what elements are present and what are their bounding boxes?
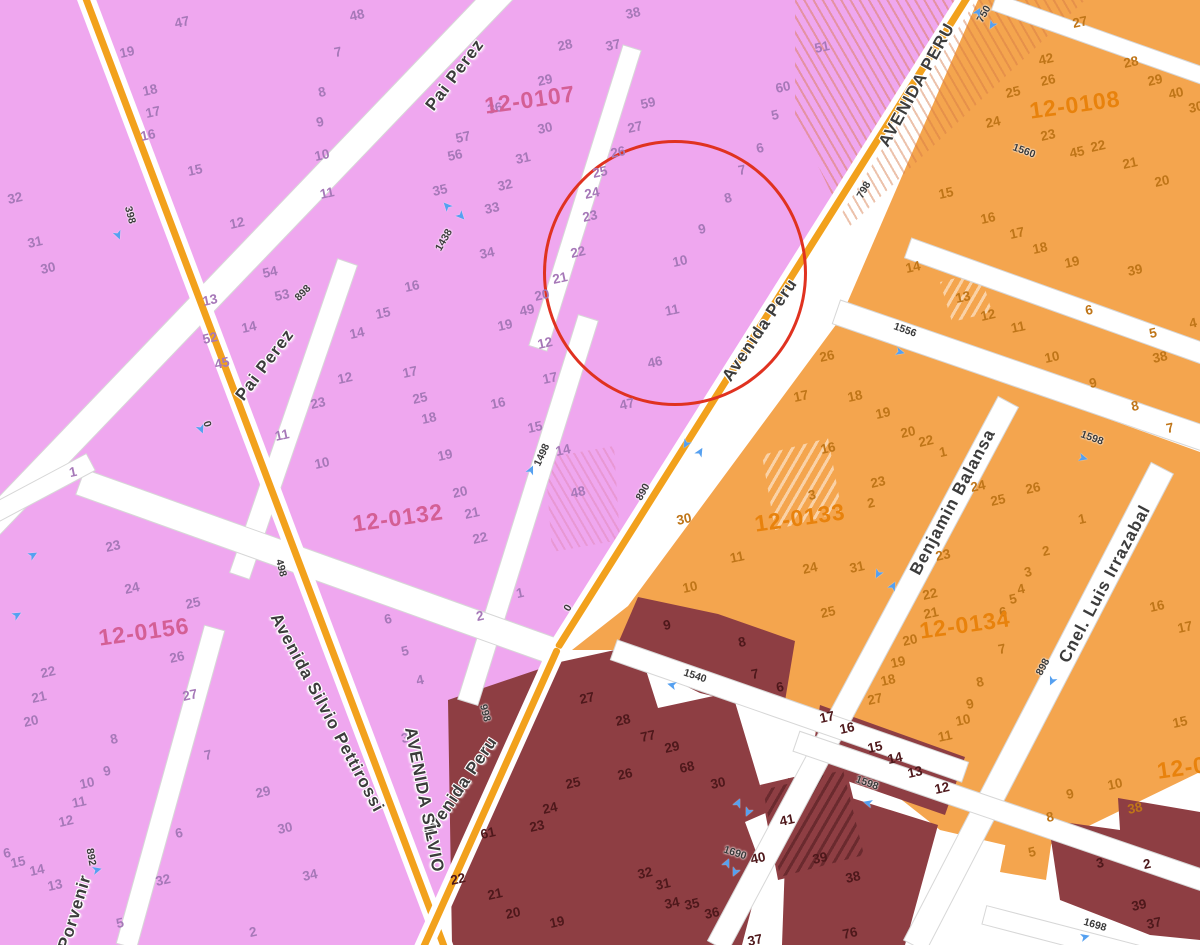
parcel-number: 17 [144, 103, 162, 121]
parcel-number: 11 [1009, 318, 1026, 336]
parcel-number: 16 [489, 394, 507, 412]
parcel-number: 10 [954, 711, 972, 729]
parcel-number: 23 [104, 537, 122, 555]
parcel-number: 32 [636, 864, 654, 882]
parcel-number: 15 [526, 418, 544, 436]
parcel-number: 20 [901, 631, 919, 649]
parcel-number: 30 [276, 819, 294, 837]
parcel-number: 16 [819, 439, 837, 457]
parcel-number: 18 [1031, 239, 1049, 257]
parcel-number: 52 [201, 329, 219, 347]
parcel-number: 27 [866, 690, 884, 708]
parcel-number: 77 [639, 727, 657, 745]
parcel-number: 26 [168, 648, 186, 666]
parcel-number: 49 [518, 301, 536, 319]
parcel-number: 13 [906, 763, 924, 781]
parcel-number: 23 [528, 817, 546, 835]
parcel-number: 14 [904, 258, 922, 276]
parcel-number: 39 [1130, 896, 1148, 914]
parcel-number: 19 [496, 316, 514, 334]
parcel-number: 22 [917, 432, 935, 450]
parcel-number: 19 [118, 43, 136, 61]
parcel-number: 25 [411, 389, 429, 407]
parcel-number: 11 [70, 793, 87, 811]
parcel-number: 37 [604, 36, 622, 54]
parcel-number: 51 [813, 38, 831, 56]
parcel-number: 28 [614, 711, 632, 729]
parcel-number: 19 [548, 913, 566, 931]
parcel-number: 17 [1008, 224, 1026, 242]
parcel-number: 18 [846, 387, 864, 405]
parcel-number: 12 [336, 369, 354, 387]
parcel-number: 16 [1148, 597, 1166, 615]
parcel-number: 47 [173, 13, 191, 31]
parcel-number: 30 [39, 259, 57, 277]
parcel-number: 18 [879, 671, 897, 689]
parcel-number: 20 [451, 483, 469, 501]
parcel-number: 17 [792, 387, 810, 405]
parcel-number: 12 [536, 334, 554, 352]
parcel-number: 25 [1004, 83, 1022, 101]
parcel-number: 11 [936, 727, 953, 745]
parcel-number: 41 [778, 811, 796, 829]
parcel-number: 14 [28, 861, 46, 879]
parcel-number: 11 [663, 301, 680, 319]
parcel-number: 21 [463, 504, 481, 522]
parcel-number: 29 [254, 783, 272, 801]
parcel-number: 35 [683, 895, 701, 913]
parcel-number: 23 [1039, 126, 1057, 144]
parcel-number: 10 [681, 578, 699, 596]
parcel-number: 45 [1068, 143, 1086, 161]
parcel-number: 26 [609, 143, 627, 161]
parcel-number: 40 [749, 849, 767, 867]
parcel-number: 61 [479, 824, 497, 842]
parcel-number: 20 [533, 286, 551, 304]
parcel-number: 14 [348, 324, 366, 342]
parcel-number: 38 [1126, 799, 1144, 817]
parcel-number: 20 [899, 423, 917, 441]
parcel-number: 17 [1176, 618, 1194, 636]
parcel-number: 11 [318, 184, 335, 202]
parcel-number: 57 [454, 128, 472, 146]
parcel-number: 17 [401, 363, 419, 381]
parcel-number: 10 [313, 146, 331, 164]
direction-arrow-icon: ➤ [665, 676, 680, 694]
parcel-number: 22 [449, 870, 467, 888]
parcel-number: 28 [1122, 53, 1140, 71]
parcel-number: 15 [9, 853, 27, 871]
parcel-number: 10 [671, 252, 689, 270]
parcel-number: 59 [639, 94, 657, 112]
parcel-number: 25 [819, 603, 837, 621]
parcel-number: 48 [348, 6, 366, 24]
parcel-number: 31 [26, 233, 44, 251]
parcel-number: 34 [663, 894, 681, 912]
parcel-number: 38 [1151, 348, 1169, 366]
parcel-number: 12 [979, 306, 997, 324]
parcel-number: 16 [139, 126, 157, 144]
parcel-number: 25 [564, 774, 582, 792]
parcel-number: 42 [1037, 50, 1055, 68]
parcel-number: 12 [228, 214, 246, 232]
parcel-number: 22 [569, 243, 587, 261]
parcel-number: 14 [240, 318, 258, 336]
parcel-number: 22 [1089, 137, 1107, 155]
parcel-number: 27 [181, 686, 199, 704]
parcel-number: 24 [801, 559, 819, 577]
parcel-number: 10 [1106, 775, 1124, 793]
parcel-number: 30 [675, 510, 693, 528]
parcel-number: 32 [154, 871, 172, 889]
parcel-number: 21 [486, 885, 504, 903]
parcel-number: 35 [431, 181, 449, 199]
parcel-number: 26 [1039, 71, 1057, 89]
parcel-number: 26 [818, 347, 836, 365]
parcel-number: 19 [436, 446, 454, 464]
parcel-number: 22 [39, 663, 57, 681]
parcel-number: 25 [591, 163, 609, 181]
parcel-number: 10 [78, 774, 96, 792]
parcel-number: 12 [57, 812, 75, 830]
parcel-number: 23 [581, 207, 599, 225]
parcel-number: 22 [471, 529, 489, 547]
parcel-number: 53 [273, 286, 291, 304]
parcel-number: 47 [618, 395, 636, 413]
parcel-number: 20 [504, 904, 522, 922]
parcel-number: 46 [646, 353, 664, 371]
parcel-number: 10 [1043, 348, 1061, 366]
parcel-number: 36 [703, 904, 721, 922]
parcel-number: 34 [478, 244, 496, 262]
parcel-number: 38 [844, 868, 862, 886]
parcel-number: 21 [551, 269, 569, 287]
block-id-label: 12-0 [1155, 751, 1200, 785]
parcel-number: 37 [1145, 914, 1163, 932]
parcel-number: 31 [654, 875, 672, 893]
parcel-number: 29 [663, 738, 681, 756]
parcel-number: 14 [554, 441, 572, 459]
parcel-number: 16 [979, 209, 997, 227]
parcel-number: 56 [446, 146, 464, 164]
parcel-number: 15 [937, 184, 955, 202]
parcel-number: 21 [30, 688, 48, 706]
parcel-number: 27 [626, 118, 644, 136]
parcel-number: 32 [496, 176, 514, 194]
parcel-number: 45 [213, 354, 231, 372]
parcel-number: 18 [420, 409, 438, 427]
parcel-number: 13 [954, 288, 972, 306]
parcel-number: 68 [678, 758, 696, 776]
parcel-number: 19 [889, 653, 907, 671]
parcel-number: 11 [728, 548, 745, 566]
parcel-number: 39 [811, 849, 829, 867]
parcel-number: 18 [141, 81, 159, 99]
direction-arrow-icon: ➤ [690, 443, 709, 460]
parcel-number: 20 [22, 712, 40, 730]
parcel-number: 30 [709, 774, 727, 792]
parcel-number: 28 [556, 36, 574, 54]
parcel-number: 48 [569, 483, 587, 501]
parcel-number: 38 [624, 4, 642, 22]
parcel-number: 37 [746, 931, 764, 945]
parcel-number: 27 [1071, 13, 1089, 31]
parcel-number: 54 [261, 263, 279, 281]
parcel-number: 60 [774, 78, 792, 96]
parcel-number: 14 [886, 749, 904, 767]
parcel-number: 15 [374, 304, 392, 322]
parcel-number: 16 [403, 277, 421, 295]
parcel-number: 25 [184, 594, 202, 612]
cadastral-map[interactable]: 4719487181716891015113212313054531314524… [0, 0, 1200, 945]
parcel-number: 24 [541, 799, 559, 817]
parcel-number: 13 [201, 291, 219, 309]
parcel-number: 30 [536, 119, 554, 137]
parcel-number: 27 [578, 689, 596, 707]
parcel-number: 34 [301, 866, 319, 884]
parcel-number: 29 [1146, 71, 1164, 89]
parcel-number: 22 [921, 585, 939, 603]
parcel-number: 76 [841, 924, 859, 942]
parcel-number: 23 [869, 473, 887, 491]
parcel-number: 25 [989, 491, 1007, 509]
parcel-number: 23 [309, 394, 327, 412]
parcel-number: 16 [838, 719, 856, 737]
parcel-number: 39 [1126, 261, 1144, 279]
parcel-number: 26 [1024, 479, 1042, 497]
parcel-number: 31 [514, 149, 532, 167]
parcel-number: 19 [874, 404, 892, 422]
parcel-number: 12 [933, 779, 951, 797]
parcel-number: 32 [6, 189, 24, 207]
direction-arrow-icon: ➤ [1078, 928, 1093, 945]
parcel-number: 31 [848, 558, 866, 576]
parcel-number: 15 [186, 161, 204, 179]
parcel-number: 10 [313, 454, 331, 472]
parcel-number: 17 [541, 369, 559, 387]
parcel-number: 30 [1187, 98, 1200, 116]
selection-ellipse [543, 140, 807, 406]
parcel-number: 24 [583, 184, 601, 202]
parcel-number: 40 [1167, 84, 1185, 102]
parcel-number: 19 [1063, 253, 1081, 271]
parcel-number: 17 [818, 708, 836, 726]
parcel-number: 13 [46, 876, 64, 894]
parcel-number: 21 [1121, 154, 1139, 172]
parcel-number: 33 [483, 199, 501, 217]
parcel-number: 11 [273, 426, 290, 444]
parcel-number: 26 [616, 765, 634, 783]
parcel-number: 15 [866, 738, 884, 756]
parcel-number: 20 [1153, 172, 1171, 190]
parcel-number: 24 [123, 579, 141, 597]
parcel-number: 24 [984, 113, 1002, 131]
parcel-number: 15 [1171, 713, 1189, 731]
